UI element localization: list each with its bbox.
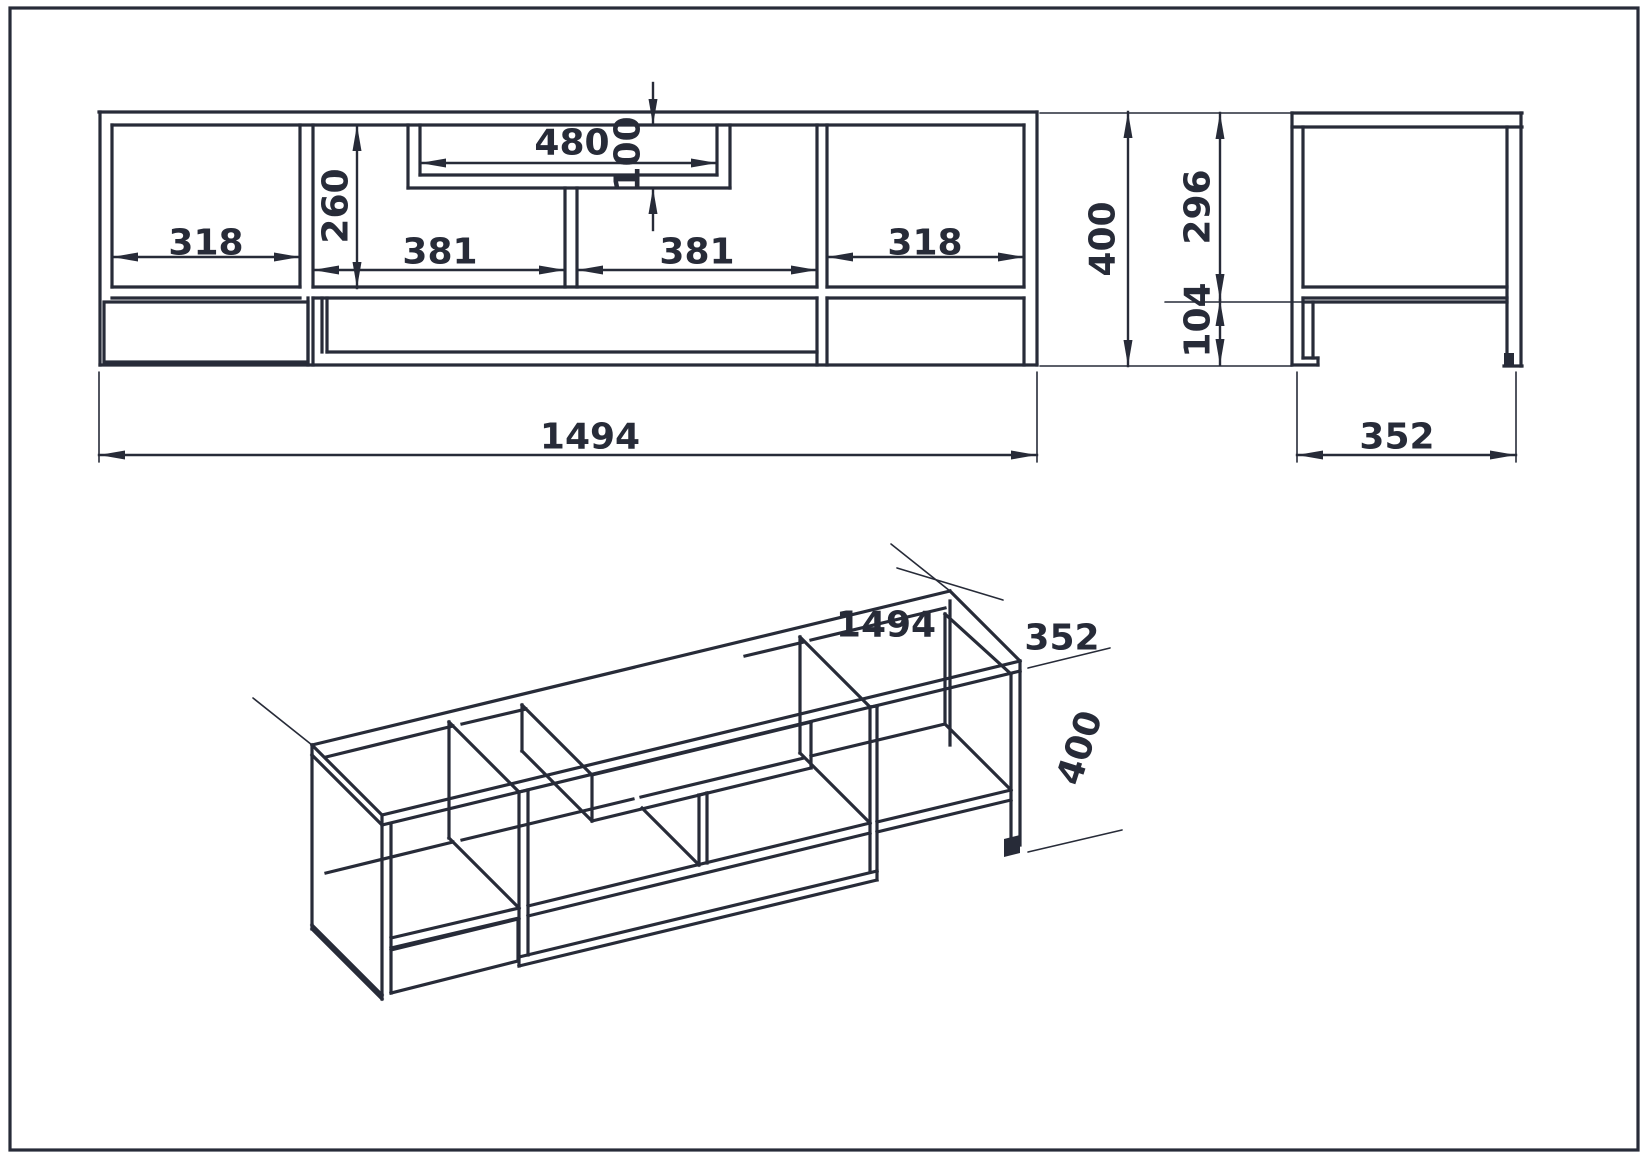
technical-drawing: 318 318 381 381 480 100 bbox=[0, 0, 1648, 1159]
dim-body-height: 296 bbox=[1178, 169, 1219, 244]
dim-left-opening-width: 381 bbox=[402, 232, 477, 273]
front-view-dimensions: 318 318 381 381 480 100 bbox=[99, 83, 1292, 462]
dim-tv-niche-width: 480 bbox=[534, 123, 609, 164]
dim-iso-width: 1494 bbox=[836, 605, 936, 646]
dim-left-niche-width: 318 bbox=[168, 223, 243, 264]
isometric-view: 1494 352 400 bbox=[253, 544, 1122, 999]
dim-right-opening-width: 381 bbox=[659, 232, 734, 273]
dim-niche-height: 260 bbox=[316, 168, 357, 243]
dim-right-niche-width: 318 bbox=[887, 223, 962, 264]
front-view: 318 318 381 381 480 100 bbox=[99, 83, 1292, 462]
dim-leg-height: 104 bbox=[1178, 282, 1219, 357]
dim-overall-width: 1494 bbox=[540, 417, 640, 458]
sheet-border bbox=[10, 8, 1638, 1150]
dim-iso-depth: 352 bbox=[1024, 618, 1099, 659]
side-view: 296 104 352 bbox=[1165, 113, 1522, 462]
drawing-sheet: 318 318 381 381 480 100 bbox=[0, 0, 1648, 1159]
dim-overall-depth: 352 bbox=[1359, 417, 1434, 458]
dim-tv-niche-height: 100 bbox=[608, 116, 649, 191]
dim-overall-height: 400 bbox=[1083, 201, 1124, 276]
dim-iso-height: 400 bbox=[1049, 706, 1111, 790]
